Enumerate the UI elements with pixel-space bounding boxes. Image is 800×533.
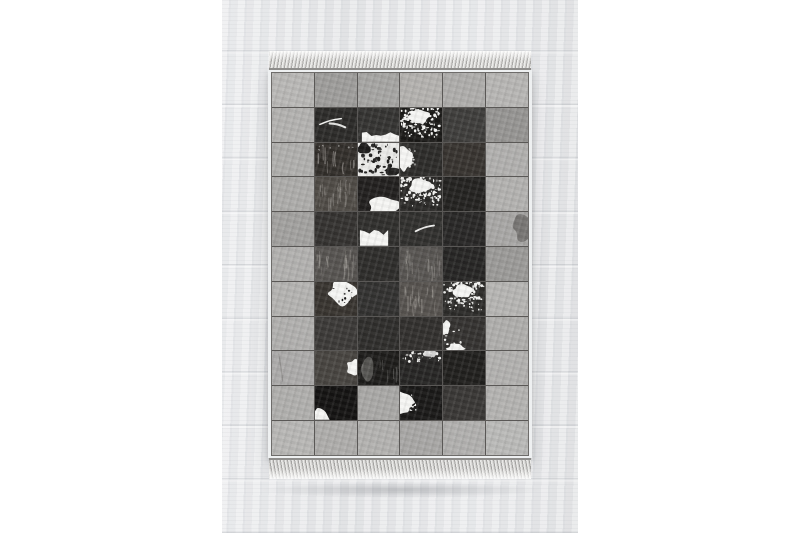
rug-patch-cell: [272, 177, 314, 211]
rug-patch-cell: [358, 247, 400, 281]
rug-patch-cell: [400, 247, 442, 281]
patch-spot-pattern: [358, 351, 400, 385]
rug-patch-cell: [443, 351, 485, 385]
rug-patch-cell: [358, 143, 400, 177]
rug-patch-cell: [443, 317, 485, 351]
rug-patch-cell: [315, 351, 357, 385]
patch-spot-pattern: [400, 282, 442, 316]
rug-patch-cell: [272, 351, 314, 385]
rug-patch-cell: [400, 317, 442, 351]
rug-patch-cell: [358, 282, 400, 316]
rug-patch-cell: [486, 247, 528, 281]
rug-patch-cell: [315, 177, 357, 211]
patch-spot-pattern: [358, 143, 400, 177]
patch-spot-pattern: [400, 212, 442, 246]
rug-patch-cell: [272, 143, 314, 177]
rug-patch-cell: [358, 177, 400, 211]
patch-spot-pattern: [443, 282, 485, 316]
rug-patch-cell: [315, 108, 357, 142]
patch-spot-pattern: [358, 108, 400, 142]
rug-patch-cell: [358, 421, 400, 455]
rug-patch-cell: [315, 386, 357, 420]
rug-patch-cell: [272, 73, 314, 107]
rug-patch-cell: [400, 177, 442, 211]
patch-spot-pattern: [358, 212, 400, 246]
rug-patch-cell: [486, 421, 528, 455]
rug-patch-cell: [358, 212, 400, 246]
rug-patch-cell: [443, 177, 485, 211]
rug-patch-cell: [315, 421, 357, 455]
rug-patch-cell: [443, 143, 485, 177]
rug-patch-cell: [400, 421, 442, 455]
rug-patch-cell: [443, 73, 485, 107]
rug-patch-cell: [443, 108, 485, 142]
rug-patch-cell: [486, 282, 528, 316]
rug-patch-cell: [400, 143, 442, 177]
rug-patch-cell: [315, 212, 357, 246]
rug-patch-cell: [443, 247, 485, 281]
rug-patch-cell: [400, 282, 442, 316]
patch-spot-pattern: [315, 351, 357, 385]
rug-patch-cell: [315, 247, 357, 281]
rug-patch-cell: [443, 212, 485, 246]
rug-patch-cell: [358, 351, 400, 385]
rug-patch-cell: [358, 317, 400, 351]
patch-spot-pattern: [315, 108, 357, 142]
patch-spot-pattern: [400, 143, 442, 177]
rug-patch-cell: [315, 143, 357, 177]
patch-spot-pattern: [400, 386, 442, 420]
rug-patch-cell: [486, 108, 528, 142]
rug-patch-cell: [486, 351, 528, 385]
rug-patch-cell: [272, 247, 314, 281]
rug-patch-cell: [315, 282, 357, 316]
patchwork-rug: [268, 51, 532, 479]
patch-spot-pattern: [400, 247, 442, 281]
rug-patch-cell: [486, 317, 528, 351]
patch-spot-pattern: [400, 351, 442, 385]
rug-patch-cell: [443, 421, 485, 455]
rug-patch-cell: [400, 73, 442, 107]
rug-patch-cell: [486, 177, 528, 211]
rug-patch-cell: [272, 282, 314, 316]
patch-spot-pattern: [272, 351, 314, 385]
rug-patch-cell: [358, 73, 400, 107]
rug-patch-cell: [486, 143, 528, 177]
patch-spot-pattern: [315, 282, 357, 316]
rug-patch-cell: [400, 108, 442, 142]
rug-patch-cell: [315, 317, 357, 351]
rug-patch-cell: [358, 386, 400, 420]
rug-patch-cell: [400, 212, 442, 246]
rug-fringe-top: [269, 51, 531, 70]
rug-patch-cell: [272, 317, 314, 351]
patch-spot-pattern: [315, 386, 357, 420]
rug-patch-cell: [272, 212, 314, 246]
patch-spot-pattern: [358, 177, 400, 211]
rug-patch-cell: [315, 73, 357, 107]
rug-shadow: [258, 482, 544, 498]
patch-spot-pattern: [315, 177, 357, 211]
rug-patch-cell: [443, 386, 485, 420]
rug-patch-cell: [486, 73, 528, 107]
patch-spot-pattern: [486, 212, 528, 246]
patch-spot-pattern: [315, 247, 357, 281]
patch-spot-pattern: [400, 177, 442, 211]
rug-patch-cell: [400, 386, 442, 420]
rug-patch-cell: [272, 386, 314, 420]
rug-patch-cell: [486, 386, 528, 420]
patch-spot-pattern: [400, 108, 442, 142]
rug-body: [268, 70, 532, 458]
rug-patch-cell: [358, 108, 400, 142]
rug-fringe-bottom: [269, 458, 531, 479]
rug-patch-cell: [486, 212, 528, 246]
rug-patch-grid: [271, 72, 529, 456]
product-photo: [0, 0, 800, 533]
patch-spot-pattern: [315, 143, 357, 177]
rug-patch-cell: [400, 351, 442, 385]
patch-spot-pattern: [443, 317, 485, 351]
rug-patch-cell: [272, 108, 314, 142]
rug-patch-cell: [272, 421, 314, 455]
rug-patch-cell: [443, 282, 485, 316]
